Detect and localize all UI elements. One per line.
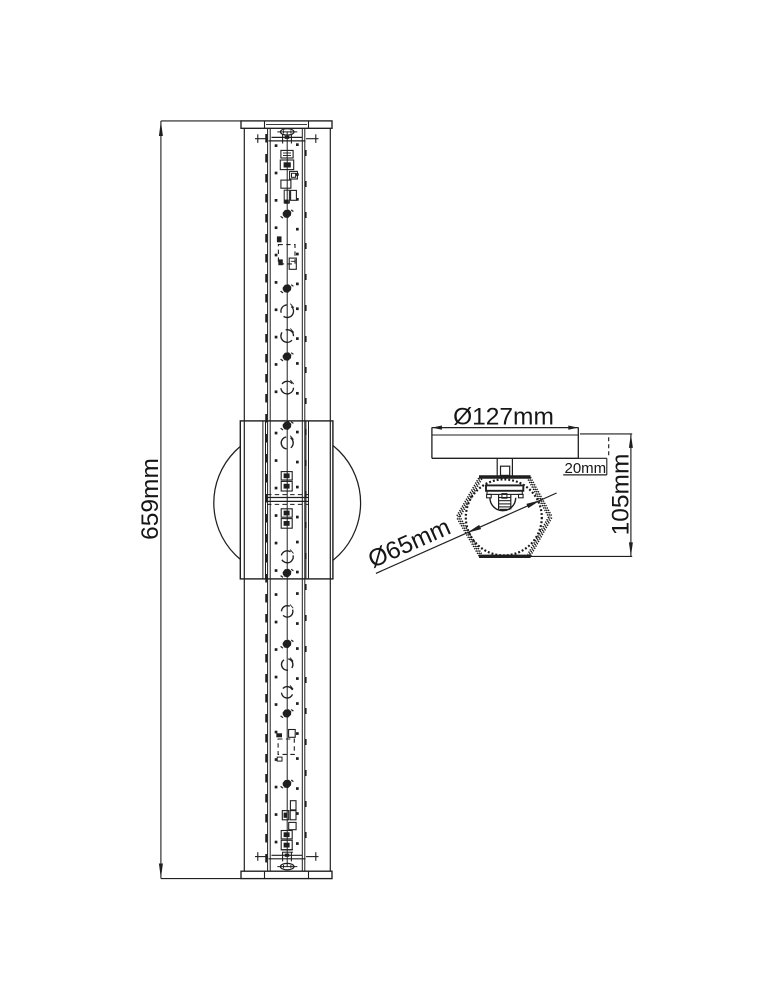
svg-text:105mm: 105mm xyxy=(608,454,635,536)
svg-text:659mm: 659mm xyxy=(137,458,164,540)
svg-text:20mm: 20mm xyxy=(565,460,607,477)
svg-text:Ø127mm: Ø127mm xyxy=(453,403,554,430)
